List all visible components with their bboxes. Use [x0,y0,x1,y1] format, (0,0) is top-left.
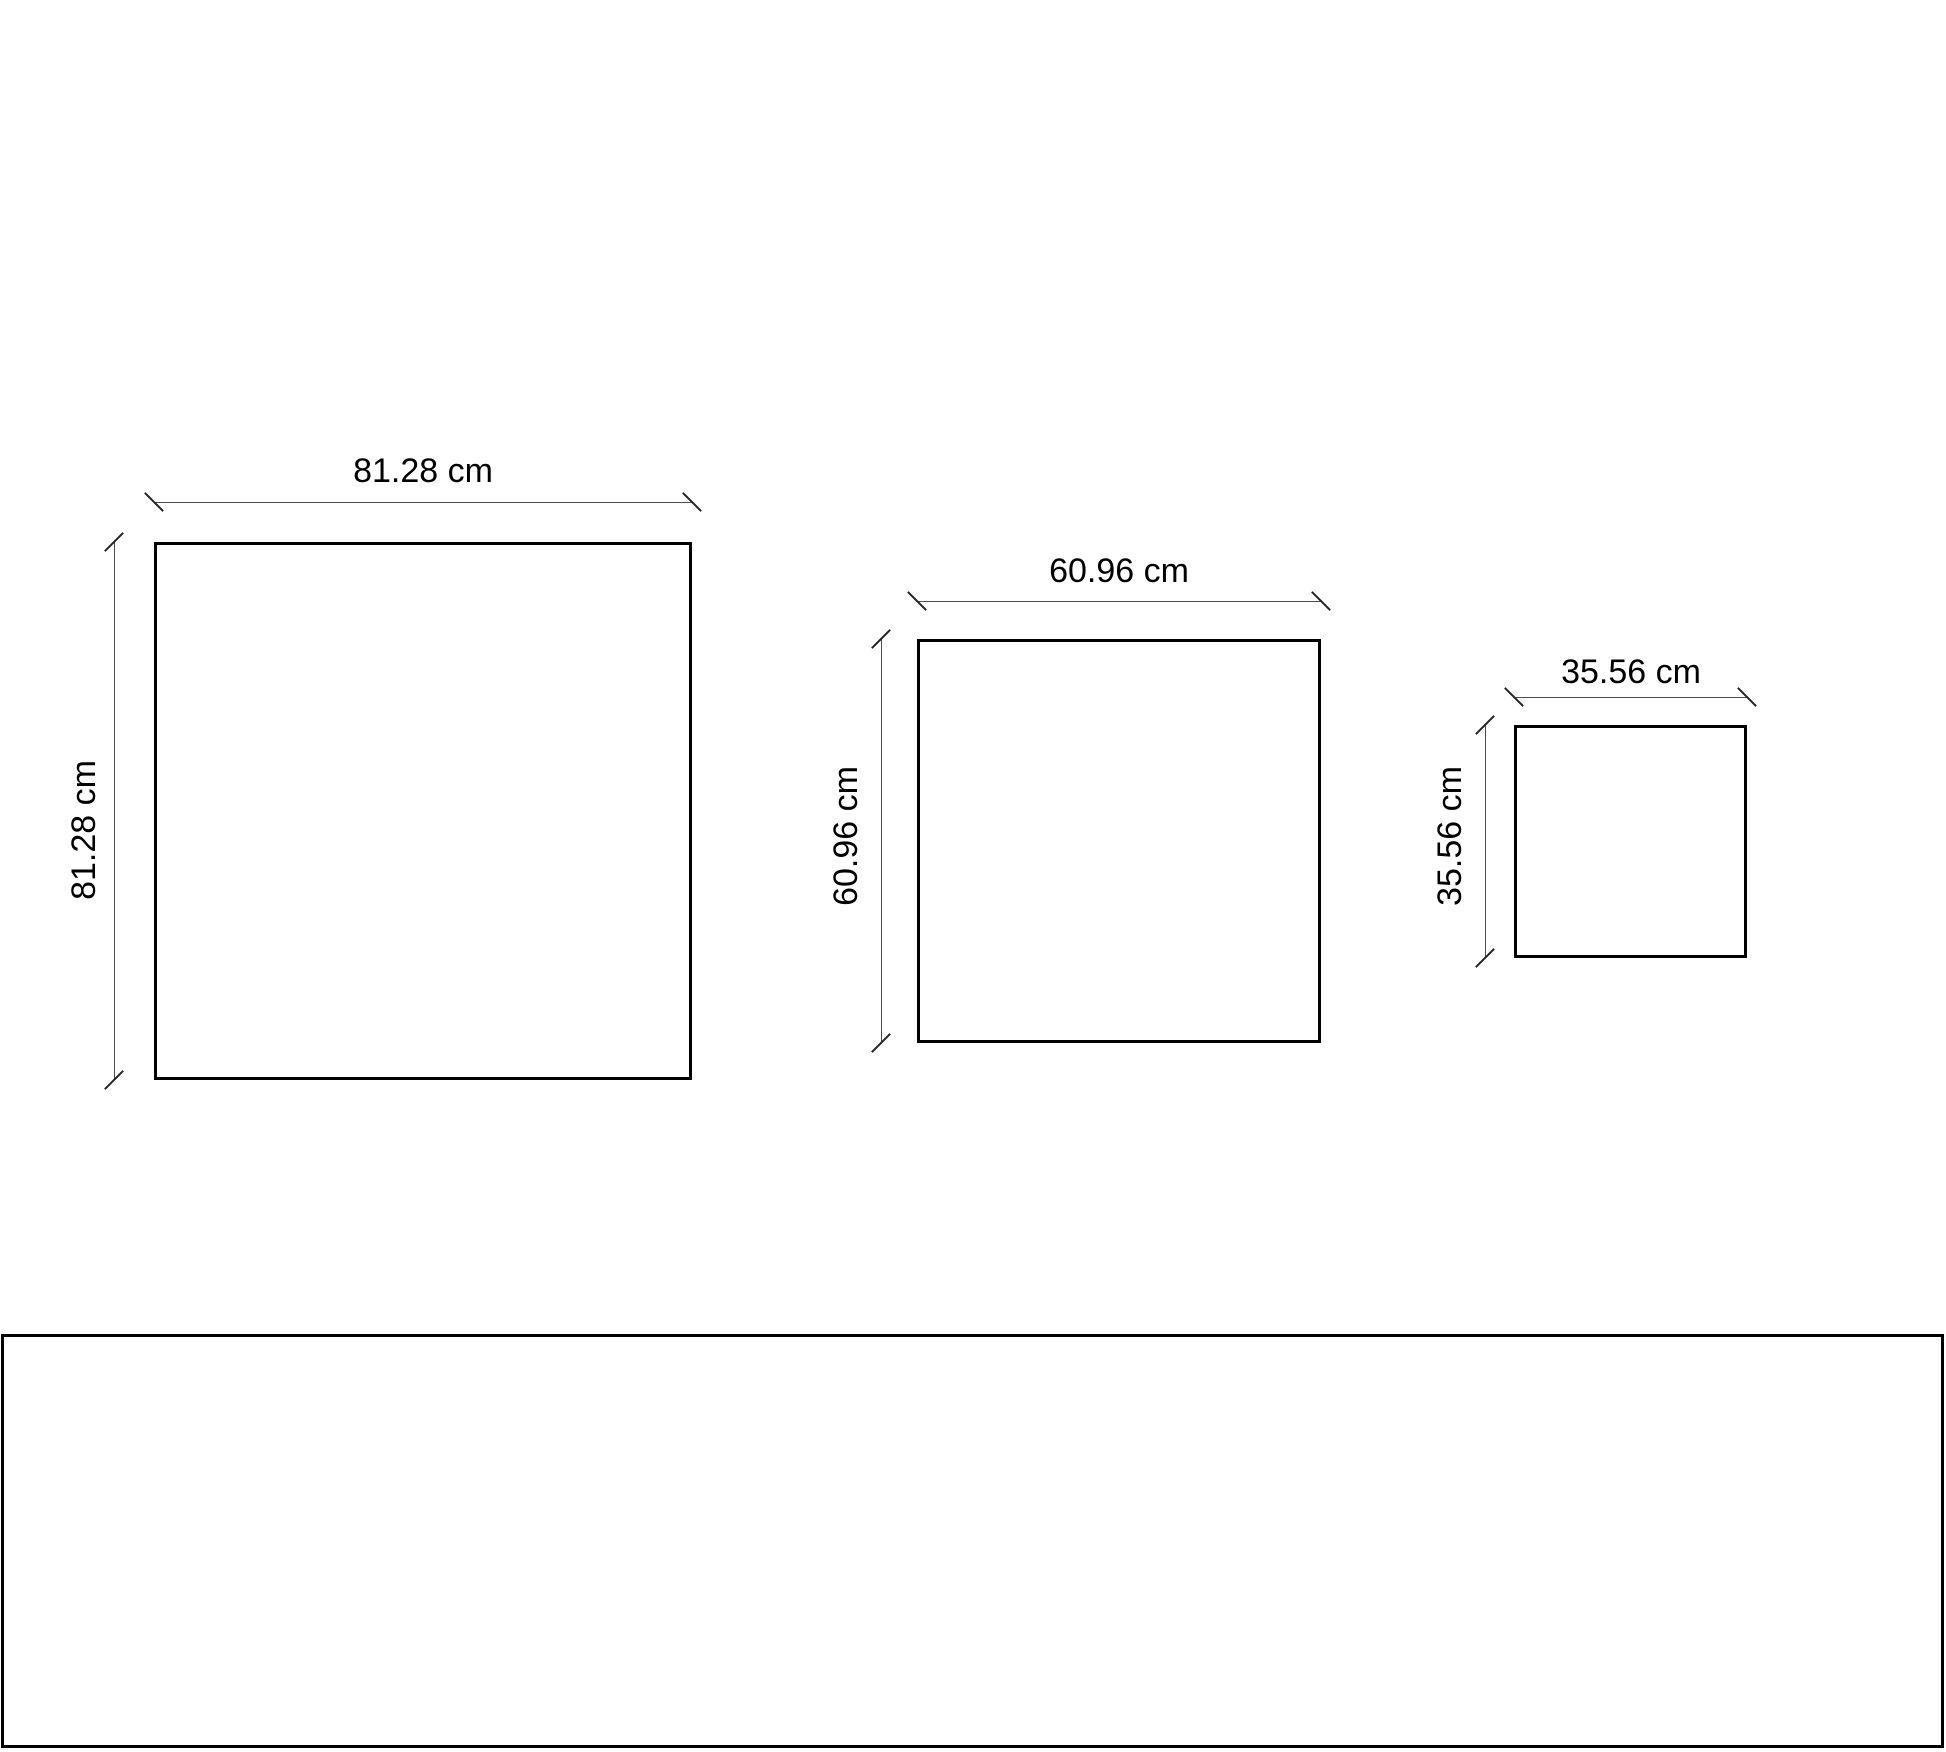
height-label-square-60cm: 60.96 cm [829,766,863,906]
height-dimension-line-square-60cm [881,639,882,1043]
bottom-rectangle-panel [1,1334,1944,1748]
diagram-canvas: 81.28 cm 81.28 cm 60.96 cm 60.96 cm 35.5… [0,0,1946,1752]
width-label-square-81cm: 81.28 cm [353,454,493,488]
width-dimension-line-square-60cm [917,601,1321,602]
height-dimension-line-square-35cm [1485,725,1486,958]
height-label-square-81cm: 81.28 cm [67,760,101,900]
width-label-square-35cm: 35.56 cm [1561,655,1701,689]
square-81cm [154,542,692,1080]
square-35cm [1514,725,1747,958]
width-dimension-line-square-35cm [1514,697,1747,698]
width-dimension-line-square-81cm [154,502,692,503]
height-label-square-35cm: 35.56 cm [1433,766,1467,906]
height-dimension-line-square-81cm [114,542,115,1080]
square-60cm [917,639,1321,1043]
width-label-square-60cm: 60.96 cm [1049,554,1189,588]
